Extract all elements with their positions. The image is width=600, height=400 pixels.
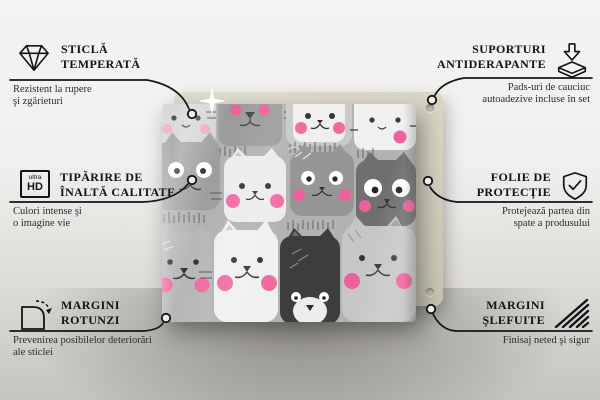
mounting-hole-top — [426, 104, 434, 112]
feature-hd-print: ultra HD TIPĂRIRE DE ÎNALTĂ CALITATE — [20, 170, 175, 200]
feature-title: MARGINI ROTUNZI — [61, 298, 120, 328]
feature-desc: Prevenirea posibilelor deteriorări ale s… — [13, 335, 152, 358]
diamond-icon — [16, 42, 52, 74]
feature-tempered-glass: STICLĂ TEMPERATĂ — [16, 42, 140, 74]
rounded-corner-icon — [16, 298, 52, 332]
glass-panel — [162, 104, 416, 322]
ultra-hd-icon: ultra HD — [20, 170, 50, 198]
mounting-hole-bottom — [426, 288, 434, 296]
feature-polished-edges: MARGINI ŞLEFUITE — [414, 298, 590, 328]
feature-anti-slip-pads: SUPORTURI ANTIDERAPANTE — [414, 42, 590, 80]
shield-check-icon — [560, 170, 590, 202]
feature-title: FOLIE DE PROTECŢIE — [477, 170, 551, 200]
title-line: STICLĂ — [61, 42, 140, 57]
feature-desc: Protejează partea din spate a produsului — [390, 206, 590, 229]
feature-desc: Pads-uri de cauciuc autoadezive incluse … — [380, 82, 590, 105]
feature-desc: Finisaj neted şi sigur — [390, 335, 590, 347]
feature-title: MARGINI ŞLEFUITE — [482, 298, 545, 328]
feature-title: SUPORTURI ANTIDERAPANTE — [437, 42, 546, 72]
feature-protective-film: FOLIE DE PROTECŢIE — [430, 170, 590, 202]
anti-slip-pad-icon — [554, 42, 590, 80]
feature-desc: Rezistent la rupere şi zgârieturi — [13, 84, 92, 107]
polished-edge-icon — [554, 298, 590, 328]
feature-desc: Culori intense şi o imagine vie — [13, 206, 82, 229]
feature-rounded-edges: MARGINI ROTUNZI — [16, 298, 120, 332]
feature-title: STICLĂ TEMPERATĂ — [61, 42, 140, 72]
feature-title: TIPĂRIRE DE ÎNALTĂ CALITATE — [60, 170, 175, 200]
cat-pattern-illustration — [162, 104, 416, 322]
title-line: TEMPERATĂ — [61, 57, 140, 72]
product-infographic: STICLĂ TEMPERATĂ Rezistent la rupere şi … — [0, 0, 600, 400]
